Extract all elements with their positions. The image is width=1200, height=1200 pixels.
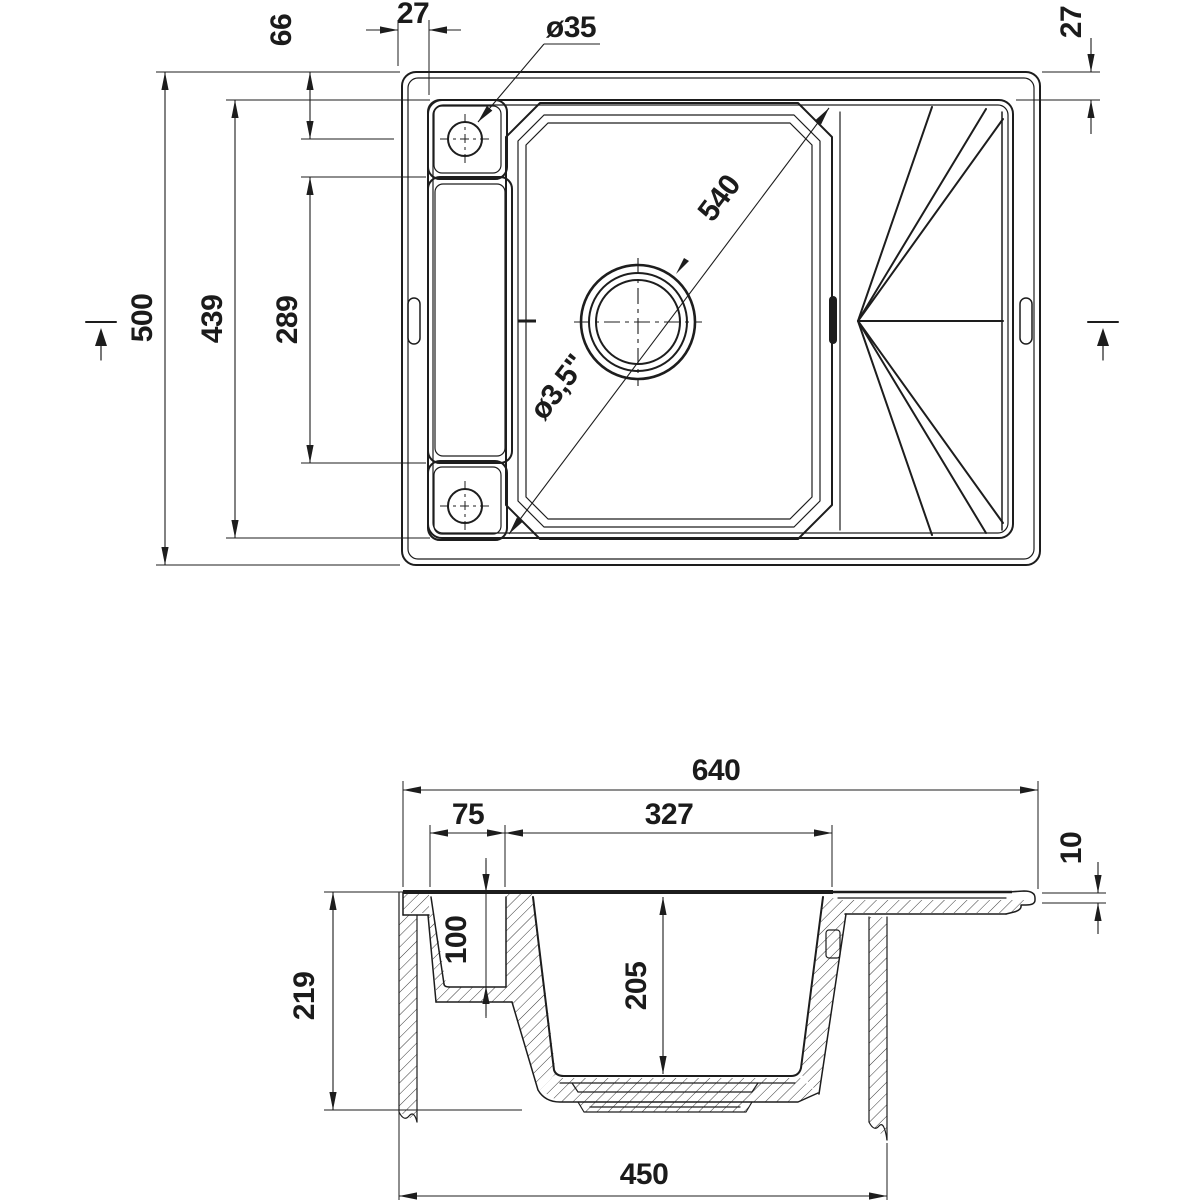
tap-hole-top <box>428 100 507 179</box>
dim-tap-hole-diameter-label: ø35 <box>546 11 596 44</box>
dim-edge-height-label: 10 <box>1055 832 1088 864</box>
top-view: 500 439 289 66 27 <box>86 0 1118 565</box>
dim-rim-left-label: 27 <box>397 0 429 30</box>
dim-cabinet-width: 450 <box>399 1112 887 1200</box>
dim-bowl-width: 327 <box>505 798 832 887</box>
dim-rim-right-label: 27 <box>1055 6 1088 38</box>
section-hatching <box>399 893 1030 1140</box>
drainboard <box>840 107 1003 535</box>
dim-rim-left: 27 <box>366 0 461 95</box>
dim-inner-length-label: 439 <box>196 295 229 344</box>
dim-overall-height-label: 219 <box>288 972 321 1021</box>
section-view: 640 75 327 10 100 205 <box>288 754 1106 1200</box>
dim-drain-diameter-label: ø3,5" <box>524 349 594 426</box>
dim-pocket-depth-label: 100 <box>440 916 473 965</box>
dim-rim-to-bowl-label: 75 <box>452 798 484 831</box>
dim-bowl-width-label: 327 <box>645 798 694 831</box>
dim-bowl-diagonal-label: 540 <box>692 169 748 228</box>
top-view-outline <box>402 72 1040 565</box>
dim-hole-offset: 66 <box>265 14 394 139</box>
dim-bowl-depth-label: 205 <box>620 962 653 1011</box>
dim-rim-right: 27 <box>1016 6 1100 134</box>
sink-technical-drawing: 500 439 289 66 27 <box>0 0 1200 1200</box>
drawing-page: 500 439 289 66 27 <box>0 0 1200 1200</box>
tap-hole-bottom <box>428 461 507 540</box>
dim-rim-to-bowl: 75 <box>430 798 505 887</box>
magnetic-pocket <box>428 177 512 463</box>
section-arrow-right <box>1088 322 1118 360</box>
dim-overall-depth: 500 <box>126 72 400 565</box>
dim-overall-width: 640 <box>403 754 1038 889</box>
dim-inner-length: 439 <box>196 100 430 538</box>
dim-overall-width-label: 640 <box>692 754 741 787</box>
dim-pocket-length-label: 289 <box>271 296 304 345</box>
drain <box>574 258 702 386</box>
dim-bowl-depth: 205 <box>620 897 663 1074</box>
dim-bowl-diagonal: 540 ø3,5" <box>509 108 829 534</box>
dim-cabinet-width-label: 450 <box>620 1158 669 1191</box>
dim-overall-depth-label: 500 <box>126 294 159 343</box>
section-arrow-left <box>86 322 116 360</box>
dim-hole-offset-label: 66 <box>265 14 298 46</box>
centerline-markers <box>86 296 1118 360</box>
dim-edge-height: 10 <box>1042 832 1106 934</box>
